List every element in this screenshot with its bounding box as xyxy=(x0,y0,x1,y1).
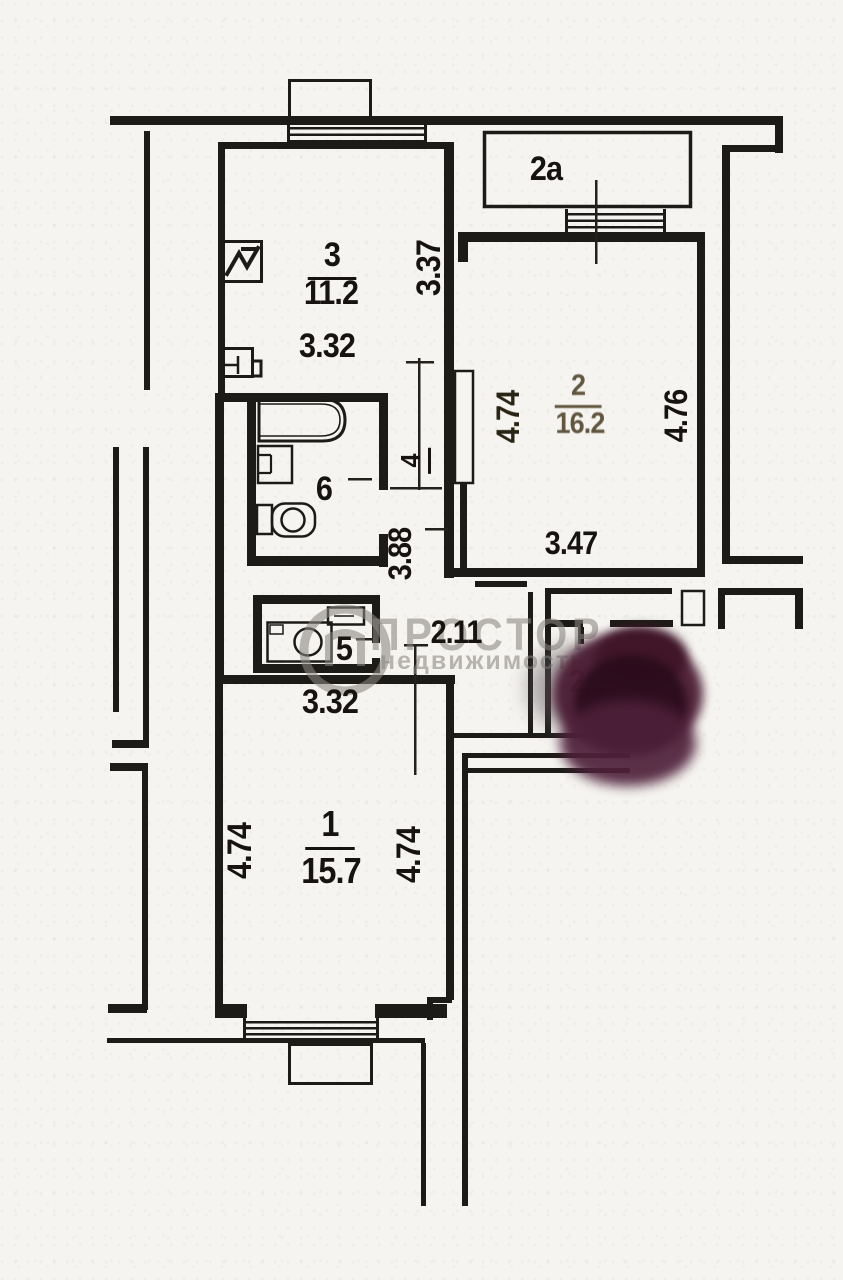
room3-dim-height: 3.37 xyxy=(412,240,446,296)
kitchen-sink-icon xyxy=(220,349,262,377)
room5-number: 5 xyxy=(336,632,352,666)
room1-area: 15.7 xyxy=(301,853,360,889)
hall-dim-width: 2.11 xyxy=(431,616,482,648)
room3-dim-width: 3.32 xyxy=(299,329,355,363)
vent-shaft xyxy=(682,591,704,625)
room2-number: 2 xyxy=(555,371,602,401)
room1-number: 1 xyxy=(305,806,355,842)
room4-number: 4 xyxy=(397,448,425,474)
balcony-bottom xyxy=(290,1045,372,1084)
room1-dim-width: 3.32 xyxy=(302,685,358,719)
room4-dim-length: 3.88 xyxy=(384,528,416,580)
bathtub-icon xyxy=(259,399,345,441)
room3-number: 3 xyxy=(308,238,357,272)
washbasin-icon xyxy=(258,446,292,483)
room2-dim-width: 3.47 xyxy=(545,527,597,559)
balcony-2a xyxy=(485,133,691,237)
room2-area: 16.2 xyxy=(556,409,605,439)
toilet-icon xyxy=(257,504,315,537)
ink-blob-lower xyxy=(560,700,696,786)
stove-icon xyxy=(222,242,262,282)
central-wall xyxy=(444,142,473,578)
balcony2a-number: 2а xyxy=(530,152,562,186)
room2-dim-right: 4.76 xyxy=(660,390,692,442)
room2-dim-left: 4.74 xyxy=(492,391,524,443)
room1-dim-right: 4.74 xyxy=(392,827,426,883)
floor-plan-scan: ПРОСТОР недвижимость 2.2 3 11.2 3.37 3.3… xyxy=(0,0,843,1280)
room3-area: 11.2 xyxy=(304,276,358,310)
room6-number: 6 xyxy=(316,472,332,506)
balcony-top-left xyxy=(287,81,427,148)
room1-dim-left: 4.74 xyxy=(223,823,257,879)
